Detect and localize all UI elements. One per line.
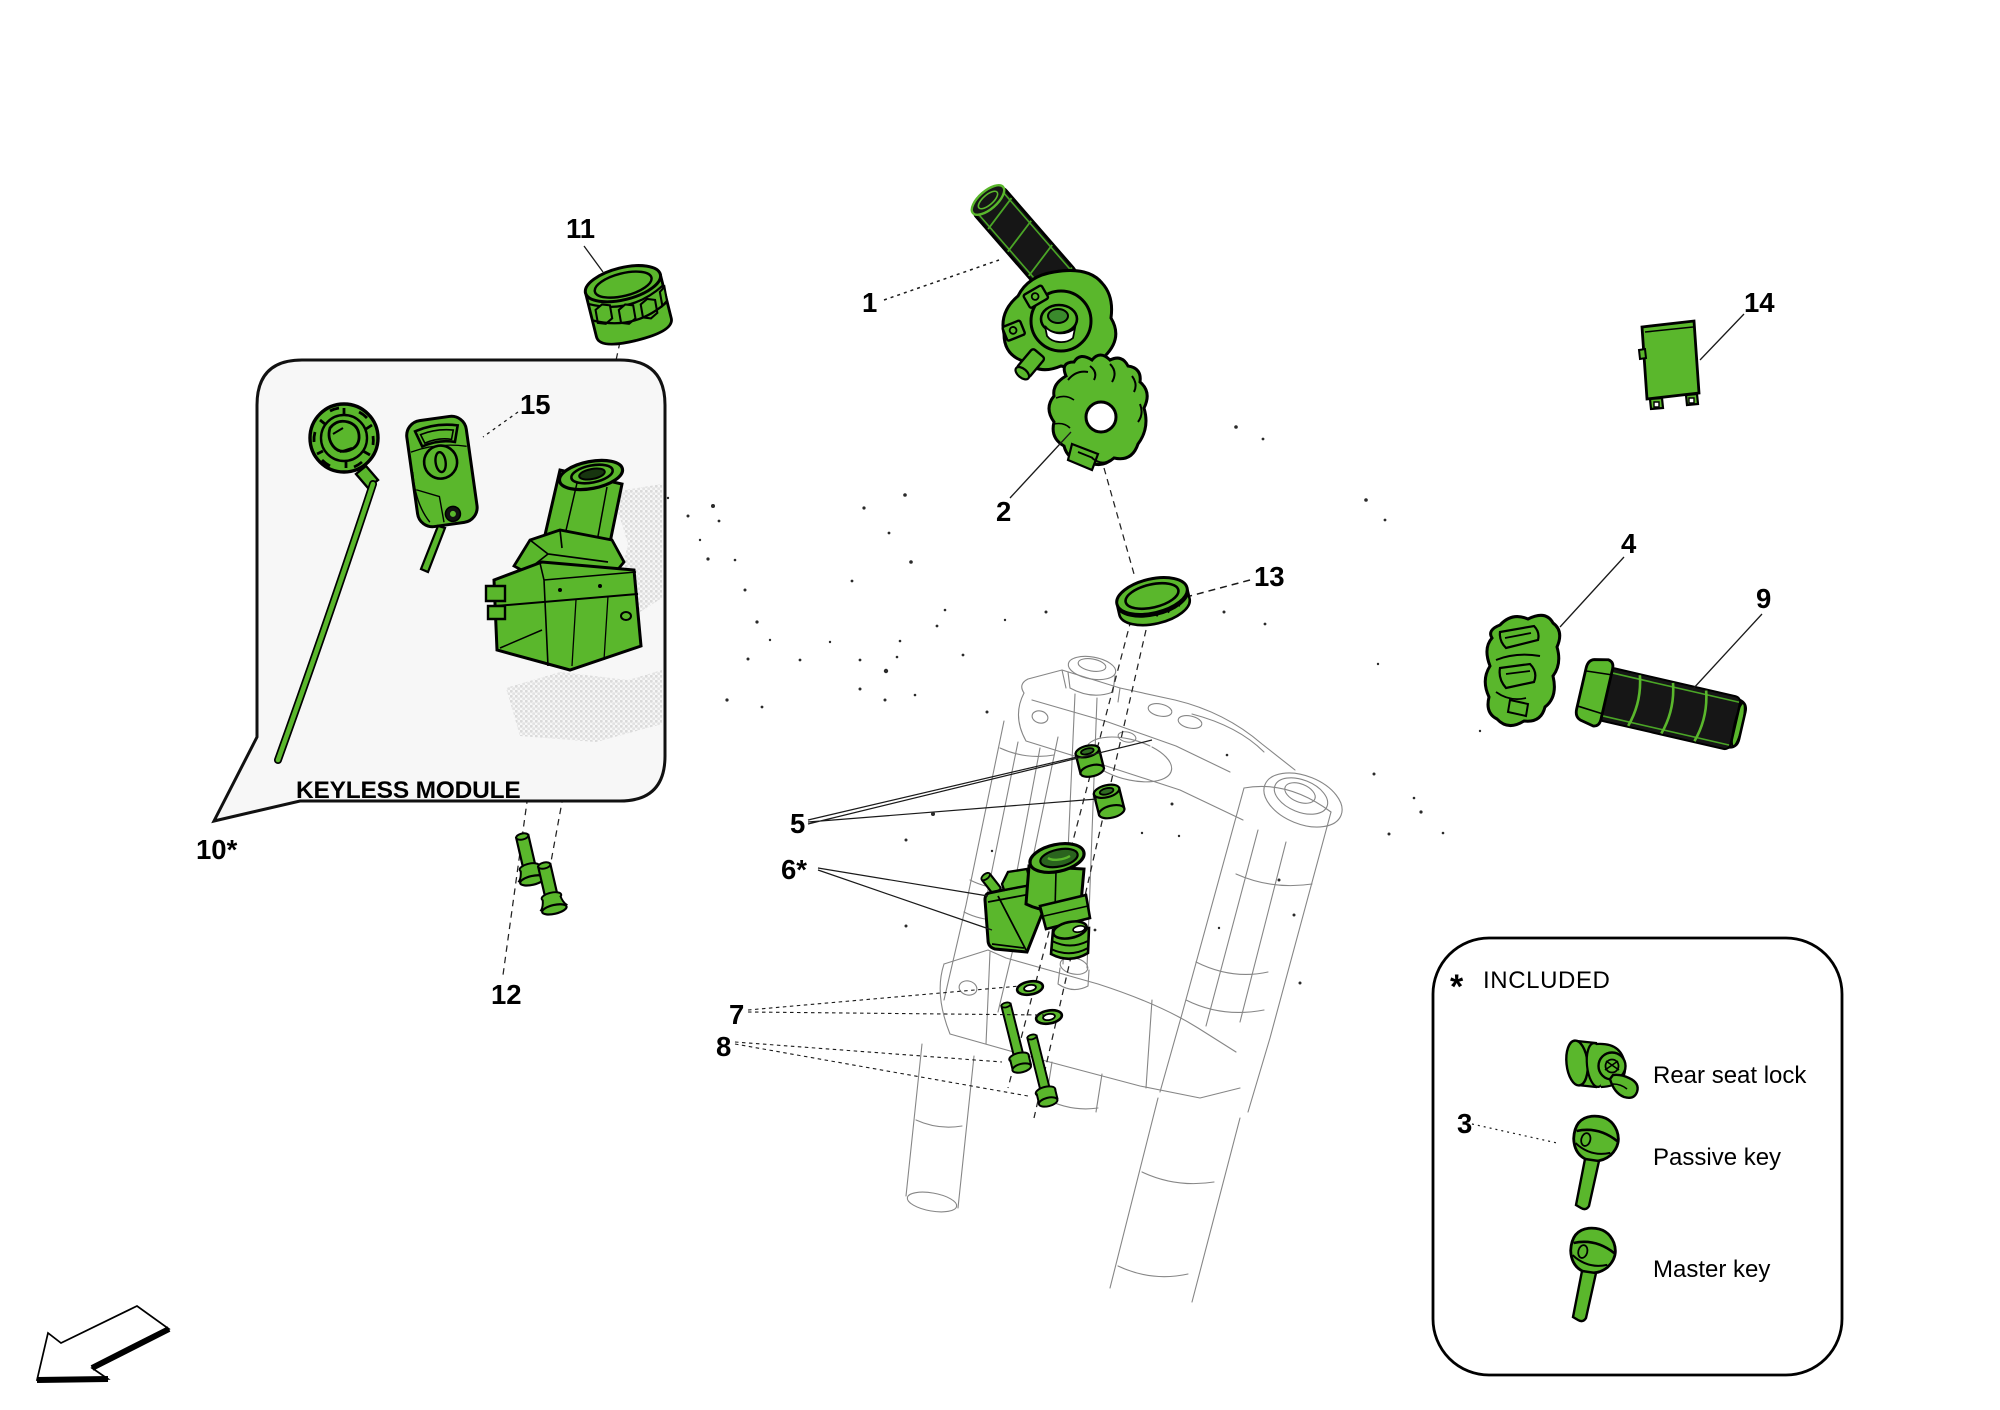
svg-text:3: 3 (1457, 1108, 1472, 1139)
svg-text:Master key: Master key (1653, 1256, 1770, 1283)
svg-text:12: 12 (491, 979, 522, 1010)
svg-text:15: 15 (520, 389, 551, 420)
svg-text:7: 7 (729, 999, 744, 1030)
svg-text:4: 4 (1621, 528, 1637, 559)
svg-text:INCLUDED: INCLUDED (1483, 967, 1610, 994)
svg-text:13: 13 (1254, 561, 1285, 592)
svg-text:11: 11 (566, 213, 595, 244)
svg-text:14: 14 (1744, 287, 1775, 318)
svg-text:1: 1 (862, 287, 877, 318)
svg-text:8: 8 (716, 1031, 731, 1062)
svg-text:*: * (1450, 968, 1464, 1006)
svg-text:KEYLESS MODULE: KEYLESS MODULE (296, 777, 521, 804)
svg-text:9: 9 (1756, 583, 1771, 614)
svg-text:5: 5 (790, 808, 805, 839)
svg-text:6*: 6* (781, 854, 807, 885)
svg-text:Rear seat lock: Rear seat lock (1653, 1062, 1807, 1089)
svg-text:2: 2 (996, 496, 1011, 527)
svg-text:Passive key: Passive key (1653, 1144, 1781, 1171)
svg-text:10*: 10* (196, 834, 238, 865)
